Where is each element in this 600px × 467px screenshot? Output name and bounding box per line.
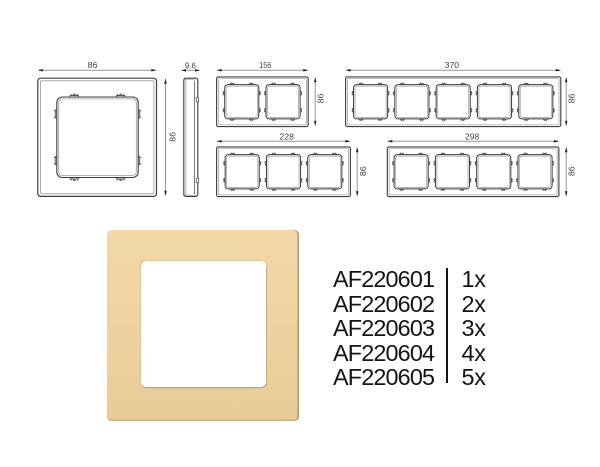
svg-text:86: 86 xyxy=(359,166,368,176)
svg-text:228: 228 xyxy=(279,132,294,141)
svg-text:86: 86 xyxy=(168,131,177,141)
svg-text:86: 86 xyxy=(568,93,577,103)
svg-text:370: 370 xyxy=(445,61,460,70)
svg-text:9.6: 9.6 xyxy=(185,61,196,70)
svg-text:86: 86 xyxy=(88,61,98,70)
svg-text:86: 86 xyxy=(317,93,326,103)
svg-text:156: 156 xyxy=(259,61,271,70)
svg-text:298: 298 xyxy=(465,132,480,141)
svg-text:86: 86 xyxy=(568,166,577,176)
